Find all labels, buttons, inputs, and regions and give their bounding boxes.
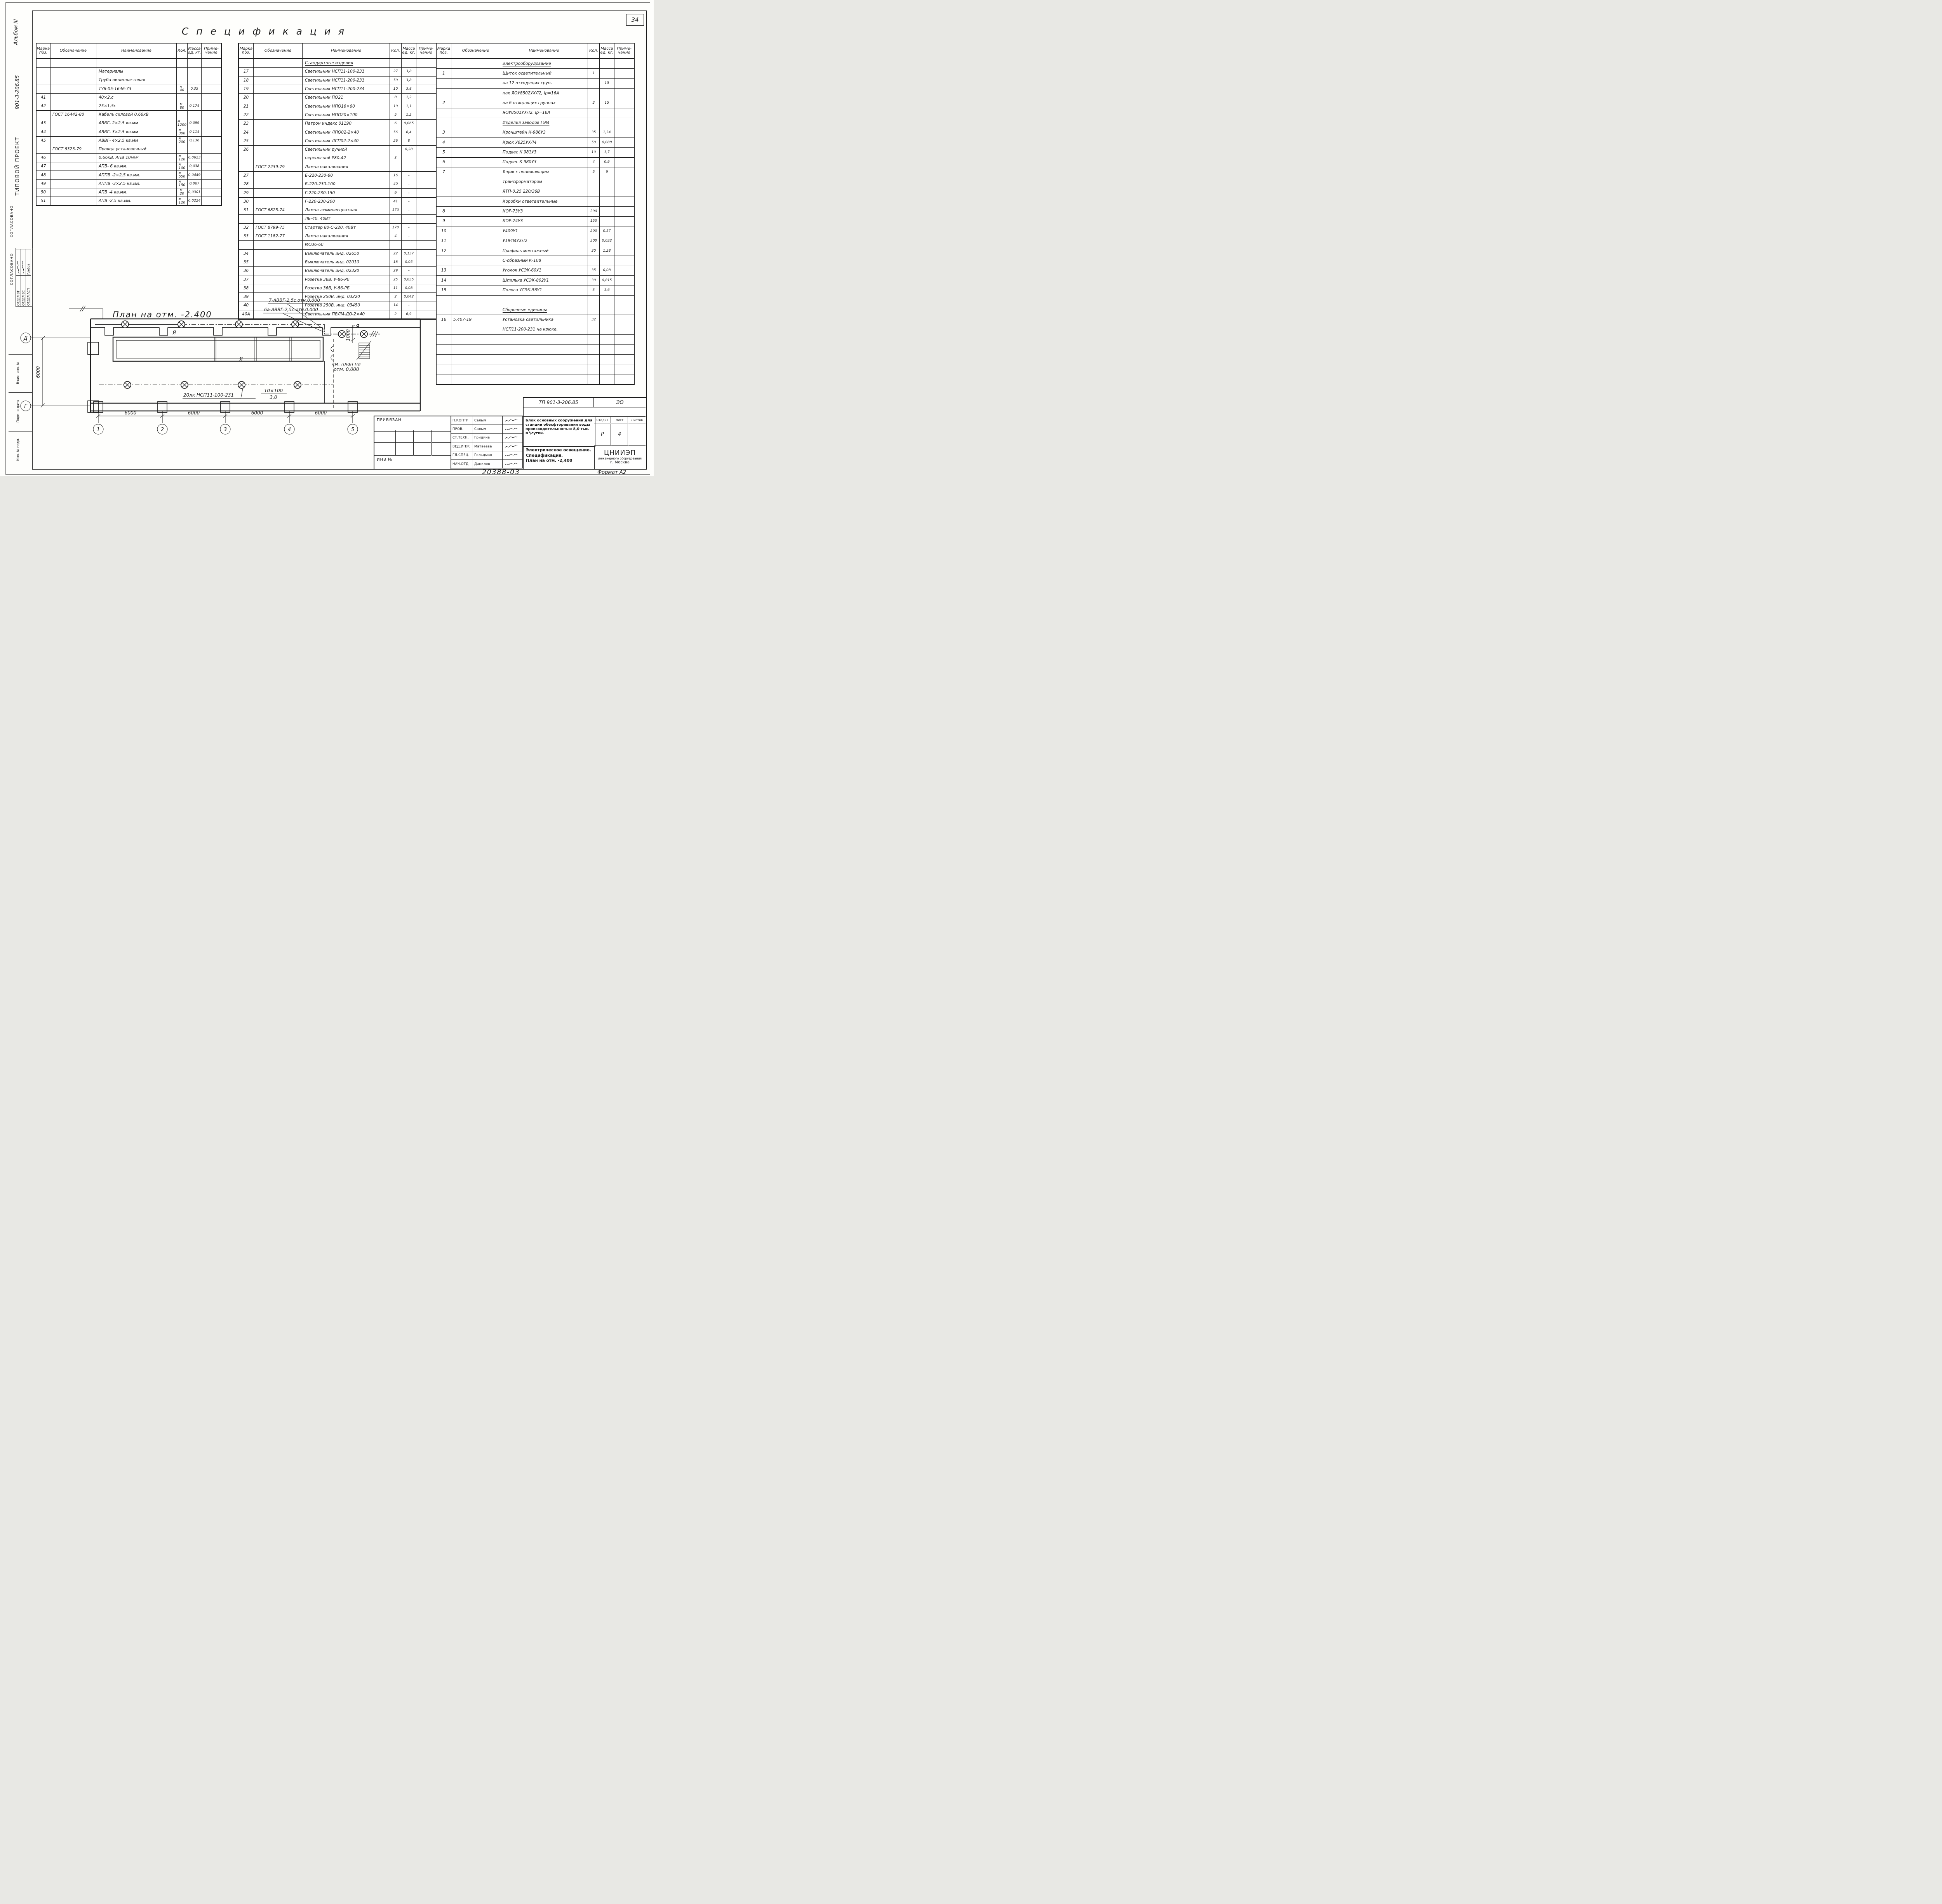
cell-name: Материалы [96, 68, 177, 76]
cell-name: Светильник НПО16×60 [303, 102, 390, 111]
signature-icon [21, 260, 26, 275]
cell-des: ГОСТ 6825-74 [254, 206, 303, 215]
table-row: 25Светильник ЛСП02-2×40268 [239, 137, 436, 146]
role-label: Н.КОНТР [451, 416, 473, 425]
cell-qty: 300 [588, 236, 600, 246]
cell-des [451, 128, 500, 138]
cell-des [254, 284, 303, 293]
cell-qty [390, 146, 402, 154]
cell-pos [437, 79, 451, 89]
cell-mass: 0,9 [600, 158, 614, 167]
table-row: 38Розетка 36В, У-86-РБ110,08 [239, 284, 436, 293]
blank-cell [374, 430, 396, 443]
signature-icon [16, 260, 21, 275]
cell-qty [390, 215, 402, 223]
cell-pos [437, 177, 451, 187]
cell-mass [600, 59, 614, 69]
cell-note [416, 250, 436, 258]
cell-name: Труба винипластовая [96, 76, 177, 85]
cell-pos [239, 241, 254, 249]
cell-pos: 35 [239, 258, 254, 267]
cell-note [202, 59, 221, 68]
cell-note [416, 137, 436, 146]
cell-qty [177, 94, 188, 102]
cell-qty [588, 364, 600, 374]
cell-des: ГОСТ 2239-79 [254, 163, 303, 172]
cell-name: трансформатором [500, 177, 588, 187]
cell-pos: 20 [239, 94, 254, 102]
axis-row-d: Д [23, 336, 28, 341]
cell-qty: 41 [390, 198, 402, 206]
cell-mass: – [402, 206, 416, 215]
cell-mass [600, 177, 614, 187]
cell-note [416, 258, 436, 267]
cell-des [451, 217, 500, 226]
cell-name: КОР-73У3 [500, 207, 588, 216]
cell-note [416, 146, 436, 154]
dept-name: Глебов [26, 249, 31, 275]
table-row: 30Г-220-230-20041– [239, 198, 436, 206]
cell-mass [402, 163, 416, 172]
table-header: Марка поз. Обозначение Наименование Кол.… [37, 44, 221, 59]
cell-name: Г-220-230-150 [303, 189, 390, 197]
col-note: Приме- чание [416, 44, 436, 58]
cell-mass [600, 118, 614, 128]
table-row: НСП11-200-231 на крюке. [437, 325, 634, 335]
cell-name: АПВ -4 кв.мм. [96, 188, 177, 197]
privyazan-label: ПРИВЯЗАН [374, 416, 453, 432]
cell-note [614, 197, 634, 207]
cell-des [254, 267, 303, 275]
lamp-icon [294, 381, 301, 388]
cell-qty: 8 [390, 94, 402, 102]
axis-col-4: 4 [288, 427, 291, 433]
table-row: СТ.ТЕХН.Грицина [451, 434, 524, 442]
cell-mass: 0,032 [600, 236, 614, 246]
cell-name: Выключатель инд. 02650 [303, 250, 390, 258]
cell-pos [437, 305, 451, 315]
cell-des [451, 59, 500, 69]
table-row: 34Выключатель инд. 02650220,137 [239, 250, 436, 258]
cell-name: 0,66кВ, АПВ 10мм² [96, 154, 177, 162]
lamp-icon [124, 381, 131, 388]
cell-name: Светильник ПО21 [303, 94, 390, 102]
cell-qty [177, 145, 188, 154]
cell-note [614, 296, 634, 305]
cell-note [614, 374, 634, 384]
sheet-subject-line: Спецификация. [526, 453, 594, 459]
table-row: 460,66кВ, АПВ 10мм²м 1200,0623 [37, 154, 221, 162]
role-label: ВЕД.ИНЖ [451, 442, 473, 451]
cell-pos [239, 215, 254, 223]
cell-note [416, 154, 436, 163]
cell-mass: – [402, 232, 416, 241]
table-row: 3Кронштейн К-986У3351,34 [437, 128, 634, 138]
cell-name: У194МУХЛ2 [500, 236, 588, 246]
cell-name: Профиль монтажный [500, 246, 588, 256]
cell-qty: 150 [588, 217, 600, 226]
cell-qty [588, 374, 600, 384]
table-row: 6Подвес К 980У340,9 [437, 158, 634, 167]
cell-note [614, 305, 634, 315]
cell-note [202, 145, 221, 154]
doc-number: ТП 901-3-206.85 [524, 398, 594, 407]
lamp-icon [122, 321, 129, 328]
cell-pos: 18 [239, 77, 254, 85]
drop-hooks [331, 331, 378, 360]
cell-qty: м 120 [177, 154, 188, 162]
cell-qty [588, 79, 600, 89]
cell-des [254, 172, 303, 180]
cell-mass: 9 [600, 167, 614, 177]
cell-des: ГОСТ 16442-80 [50, 111, 96, 119]
cell-name: Лампа люминесцентная [303, 206, 390, 215]
cell-note [614, 364, 634, 374]
blank-cell [432, 443, 451, 456]
cell-des [451, 177, 500, 187]
signature-icon [504, 426, 519, 432]
org-sub: инженерного оборудования [598, 457, 642, 460]
cell-qty: 5 [588, 167, 600, 177]
cable-callout-1: 7-АВВГ-2,5с отн.0.000 [269, 298, 320, 303]
cell-name: АВВГ- 3×2,5 кв.мм [96, 128, 177, 137]
table-header: Марка поз. Обозначение Наименование Кол.… [437, 44, 634, 59]
table-row: 10У409У12000,57 [437, 226, 634, 236]
table-row [437, 364, 634, 374]
cell-mass [600, 364, 614, 374]
table-row: ЯОУ8501УХЛ2, Iр=16А [437, 108, 634, 118]
cell-qty [588, 118, 600, 128]
table-body: МатериалыТруба винипластоваяТУ6-05-1646-… [37, 59, 221, 205]
cell-pos: 19 [239, 85, 254, 94]
cell-name: Выключатель инд. 02010 [303, 258, 390, 267]
dim-text-6000: 6000 [251, 410, 263, 416]
tank [113, 337, 323, 361]
cell-pos [37, 59, 50, 68]
stage-header: Стадия [594, 417, 611, 423]
cell-note [202, 137, 221, 145]
table-row: 15Полоса УСЭК-56У131,6 [437, 285, 634, 295]
cell-name [500, 355, 588, 364]
axis-col-1: 1 [97, 427, 100, 433]
cell-name: ТУ6-05-1646-73 [96, 85, 177, 94]
cell-pos: 12 [437, 246, 451, 256]
table-row: 32ГОСТ 8799-75Стартер 80-С-220, 40Вт170– [239, 224, 436, 232]
col-qty: Кол. [588, 44, 600, 58]
cell-note [416, 189, 436, 197]
cell-qty: 10 [390, 85, 402, 94]
table-row: 4140×2,с [37, 94, 221, 102]
dim-text-6000: 6000 [125, 410, 137, 416]
cell-note [416, 111, 436, 120]
cell-mass: – [402, 198, 416, 206]
cell-pos [239, 154, 254, 163]
role-signature [503, 442, 523, 451]
cell-des [254, 146, 303, 154]
cell-qty [177, 59, 188, 68]
cell-mass: 0,0301 [188, 188, 202, 197]
cell-mass: 0,099 [188, 119, 202, 128]
cell-pos: 34 [239, 250, 254, 258]
cell-des [254, 275, 303, 284]
col-designation: Обозначение [451, 44, 500, 58]
cell-name: АПВ -2,5 кв.мм. [96, 197, 177, 205]
cell-pos [437, 345, 451, 354]
lamp-icon [360, 331, 367, 338]
cable-callout-2: 6а-АВВГ-2,5с отн.0.000 [264, 307, 318, 312]
cell-des [50, 154, 96, 162]
cell-note [614, 345, 634, 354]
col-mass: Масса ед. кг. [402, 44, 416, 58]
role-label: НАЧ.ОТД [451, 460, 473, 468]
cell-qty [390, 59, 402, 68]
table-row: 43АВВГ- 2×2,5 кв.ммм 12000,099 [37, 119, 221, 128]
cell-des [50, 94, 96, 102]
cell-qty: 200 [588, 207, 600, 216]
cell-mass: 3,8 [402, 85, 416, 94]
cell-mass: 0,0224 [188, 197, 202, 205]
table-row: 49АППВ -3×2,5 кв.мм.м 1500,067 [37, 180, 221, 188]
table-row: 28Б-220-230-10040– [239, 180, 436, 189]
cell-mass [600, 296, 614, 305]
cell-des [451, 345, 500, 354]
cell-mass [600, 217, 614, 226]
cell-des [451, 167, 500, 177]
col-designation: Обозначение [50, 44, 96, 58]
cell-name [500, 296, 588, 305]
table-row: 24Светильник ЛПО02-2×40566,4 [239, 128, 436, 137]
table-row: Труба винипластовая [37, 76, 221, 85]
cell-des [451, 158, 500, 167]
cell-qty: м 20 [177, 188, 188, 197]
cell-name: АВВГ- 4×2,5 кв.мм [96, 137, 177, 145]
cell-des [50, 119, 96, 128]
table-row: 29Г-220-230-1509– [239, 189, 436, 197]
cell-mass: 0,08 [402, 284, 416, 293]
cell-des [50, 171, 96, 179]
cell-note [416, 68, 436, 76]
cell-mass [600, 305, 614, 315]
cell-des [254, 102, 303, 111]
blank-cell [374, 443, 396, 456]
cell-note [614, 325, 634, 335]
cell-mass: 0,174 [188, 102, 202, 111]
table-row: 26Светильник ручной0,28 [239, 146, 436, 154]
cell-des [451, 187, 500, 197]
cell-pos: 27 [239, 172, 254, 180]
cell-note [416, 232, 436, 241]
cell-des [254, 68, 303, 76]
cell-note [416, 206, 436, 215]
project-name: Блок основных сооружений для станции обе… [524, 417, 595, 447]
cell-des [254, 180, 303, 189]
cell-note [614, 138, 634, 148]
cell-name: Стандартные изделия [303, 59, 390, 68]
table-row: 20Светильник ПО2181,2 [239, 94, 436, 102]
cell-name: Уголок УСЭК-60У1 [500, 266, 588, 276]
cell-des: ГОСТ 6323-79 [50, 145, 96, 154]
table-row: Сборочные единицы [437, 305, 634, 315]
cell-name: Светильник НСП11-200-234 [303, 85, 390, 94]
cell-name: на 12 отходящих груп- [500, 79, 588, 89]
cell-mass: 15 [600, 98, 614, 108]
cell-note [614, 118, 634, 128]
cell-pos: 43 [37, 119, 50, 128]
role-name: Грицина [473, 434, 503, 442]
cell-mass [188, 145, 202, 154]
cell-des [254, 59, 303, 68]
cell-mass: 1,7 [600, 148, 614, 157]
role-signature [503, 434, 523, 442]
cell-name: АППВ -2×2,5 кв.мм. [96, 171, 177, 179]
cell-note [202, 119, 221, 128]
table-row: 51АПВ -2,5 кв.мм.м 1200,0224 [37, 197, 221, 205]
cell-mass [188, 59, 202, 68]
cell-qty: м 300 [177, 128, 188, 137]
cell-name: Провод установочный [96, 145, 177, 154]
cell-pos: 16 [437, 315, 451, 325]
cell-des [254, 111, 303, 120]
cell-note [416, 120, 436, 128]
table-row [437, 374, 634, 384]
table-row: 37Розетка 36В, У-86-Р0250,035 [239, 275, 436, 284]
cell-name: КОР-74У3 [500, 217, 588, 226]
table-row: на 12 отходящих груп-15 [437, 79, 634, 89]
cell-name: Электрооборудование [500, 59, 588, 69]
cell-note [614, 335, 634, 345]
role-name: Данилов [473, 460, 503, 468]
cell-mass: 1,6 [600, 285, 614, 295]
cell-mass: 8 [402, 137, 416, 146]
table-row: 47АПВ- 6 кв.мм.м 1000,038 [37, 162, 221, 171]
cell-mass: 0,57 [600, 226, 614, 236]
dim-text-6000: 6000 [188, 410, 200, 416]
table-row: 27Б-220-230-6016– [239, 172, 436, 180]
table-row: ПРОВ.Салым [451, 425, 524, 433]
luminaire-note-frac-bot: 3,0 [270, 395, 277, 400]
cell-name: Шпилька УСЭК-802У1 [500, 276, 588, 285]
col-designation: Обозначение [254, 44, 303, 58]
cell-mass: 0,08 [600, 266, 614, 276]
cell-note [202, 162, 221, 171]
table-row: пах ЯОУ8502УХЛ2, Iр=16А [437, 89, 634, 98]
sidebar-project-type: Типовой проект [15, 128, 21, 204]
cell-note [614, 128, 634, 138]
cell-name: Сборочные единицы [500, 305, 588, 315]
cell-note [202, 85, 221, 94]
blank-cell [432, 430, 451, 443]
table-row: ЯТП-0,25 220/36В [437, 187, 634, 197]
org-name: ЦНИИЭП [604, 449, 636, 457]
cell-qty: м 200 [177, 137, 188, 145]
table-row [37, 59, 221, 68]
axis-col-5: 5 [351, 427, 354, 433]
archive-number: 20388-03 [466, 468, 536, 476]
see-plan-note-2: отм. 0,000 [334, 367, 359, 372]
cell-pos [437, 59, 451, 69]
cell-des [254, 258, 303, 267]
role-signature [503, 460, 523, 468]
cell-pos: 51 [37, 197, 50, 205]
table-row: 31ГОСТ 6825-74Лампа люминесцентная170– [239, 206, 436, 215]
cell-pos [437, 364, 451, 374]
table-row: 22Светильник НПО20×10051,2 [239, 111, 436, 120]
table-row: С-образный К-108 [437, 256, 634, 266]
table-row: Изделия заводов ГЭМ [437, 118, 634, 128]
cell-des [50, 68, 96, 76]
cell-des [254, 120, 303, 128]
see-plan-note-1: см. план на [332, 361, 360, 367]
dim-text-6000: 6000 [315, 410, 327, 416]
cell-qty: 29 [390, 267, 402, 275]
cell-mass: 0,815 [600, 276, 614, 285]
blank-row [524, 408, 646, 417]
cell-name: НСП11-200-231 на крюке. [500, 325, 588, 335]
sidebar-project-number: 901-3-206.85 [15, 66, 21, 118]
cell-note [416, 172, 436, 180]
blank-cell [396, 443, 414, 456]
table-row: 18Светильник НСП11-200-231503,8 [239, 77, 436, 85]
cell-mass [600, 355, 614, 364]
cell-name [500, 345, 588, 354]
cell-pos: 2 [437, 98, 451, 108]
cell-pos: 7 [437, 167, 451, 177]
cell-qty [177, 76, 188, 85]
table-row: 14Шпилька УСЭК-802У1300,815 [437, 276, 634, 285]
table-row: 17Светильник НСП11-100-231273,8 [239, 68, 436, 76]
role-label: СТ.ТЕХН. [451, 434, 473, 442]
cell-des [451, 325, 500, 335]
cell-pos: 14 [437, 276, 451, 285]
cell-des [50, 59, 96, 68]
lamp-icon [338, 331, 345, 338]
cell-note [614, 217, 634, 226]
cell-name: Подвес К 981У3 [500, 148, 588, 157]
cell-mass: 6,4 [402, 128, 416, 137]
cell-pos: 15 [437, 285, 451, 295]
cell-qty [588, 108, 600, 118]
cell-qty: 170 [390, 206, 402, 215]
cell-des [451, 256, 500, 266]
cell-qty: 9 [390, 189, 402, 197]
cell-qty: 25 [390, 275, 402, 284]
sheet-header: Лист [611, 417, 628, 423]
table-row: Электрооборудование [437, 59, 634, 69]
cell-name: пах ЯОУ8502УХЛ2, Iр=16А [500, 89, 588, 98]
col-name: Наименование [303, 44, 390, 58]
cell-note [202, 154, 221, 162]
table-row: 11У194МУХЛ23000,032 [437, 236, 634, 246]
table-row [437, 335, 634, 345]
cell-pos [437, 118, 451, 128]
spec-table-standard: Марка поз. Обозначение Наименование Кол.… [238, 43, 437, 320]
cell-des [254, 154, 303, 163]
signature-icon [504, 444, 519, 449]
col-pos: Марка поз. [37, 44, 50, 58]
cell-note [202, 94, 221, 102]
cell-des [451, 236, 500, 246]
cell-qty [588, 345, 600, 354]
cell-des [50, 197, 96, 205]
cell-des [254, 241, 303, 249]
cell-des [451, 296, 500, 305]
table-row: 19Светильник НСП11-200-234103,8 [239, 85, 436, 94]
cell-mass [188, 111, 202, 119]
cell-pos [437, 296, 451, 305]
cell-mass: 0,28 [402, 146, 416, 154]
col-mass: Масса ед. кг. [600, 44, 614, 58]
cell-pos: 45 [37, 137, 50, 145]
